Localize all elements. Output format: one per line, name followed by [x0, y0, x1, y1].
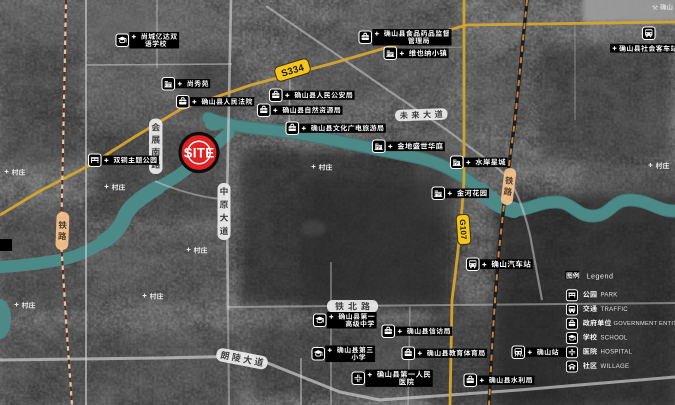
svg-text:SCHOOL: SCHOOL [601, 335, 629, 341]
svg-text:WILLAGE: WILLAGE [601, 364, 630, 370]
svg-text:TRAFFIC: TRAFFIC [601, 307, 629, 313]
svg-text:SITE: SITE [184, 146, 215, 161]
svg-text:GOVERNMENT ENTITY: GOVERNMENT ENTITY [614, 321, 675, 327]
svg-text:G107: G107 [458, 219, 468, 240]
svg-text:⚒: ⚒ [652, 4, 658, 12]
svg-text:Legend: Legend [587, 271, 614, 280]
svg-text:HOSPITAL: HOSPITAL [601, 350, 633, 356]
svg-text:PARK: PARK [601, 293, 618, 299]
